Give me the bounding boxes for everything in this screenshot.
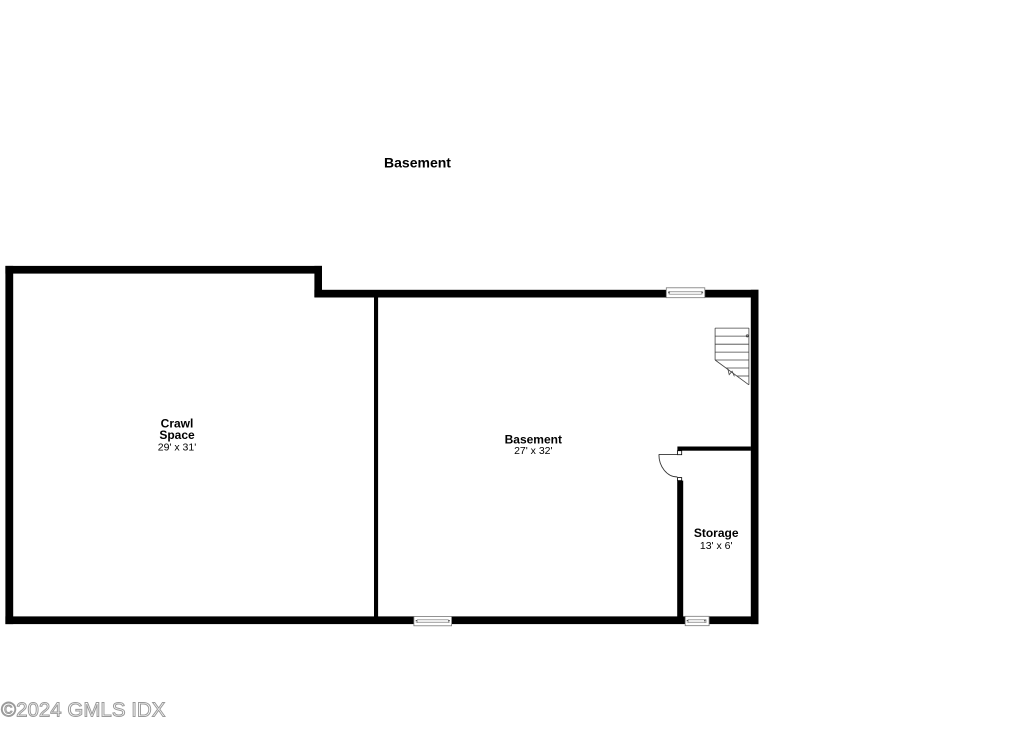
svg-text:27' x 32': 27' x 32' (514, 445, 552, 457)
svg-text:29' x 31': 29' x 31' (158, 442, 196, 454)
svg-text:13' x 6': 13' x 6' (700, 540, 733, 552)
svg-text:©2024 GMLS IDX: ©2024 GMLS IDX (1, 699, 166, 722)
svg-text:Space: Space (159, 428, 195, 442)
svg-text:Storage: Storage (694, 526, 739, 540)
svg-text:Basement: Basement (384, 155, 451, 171)
